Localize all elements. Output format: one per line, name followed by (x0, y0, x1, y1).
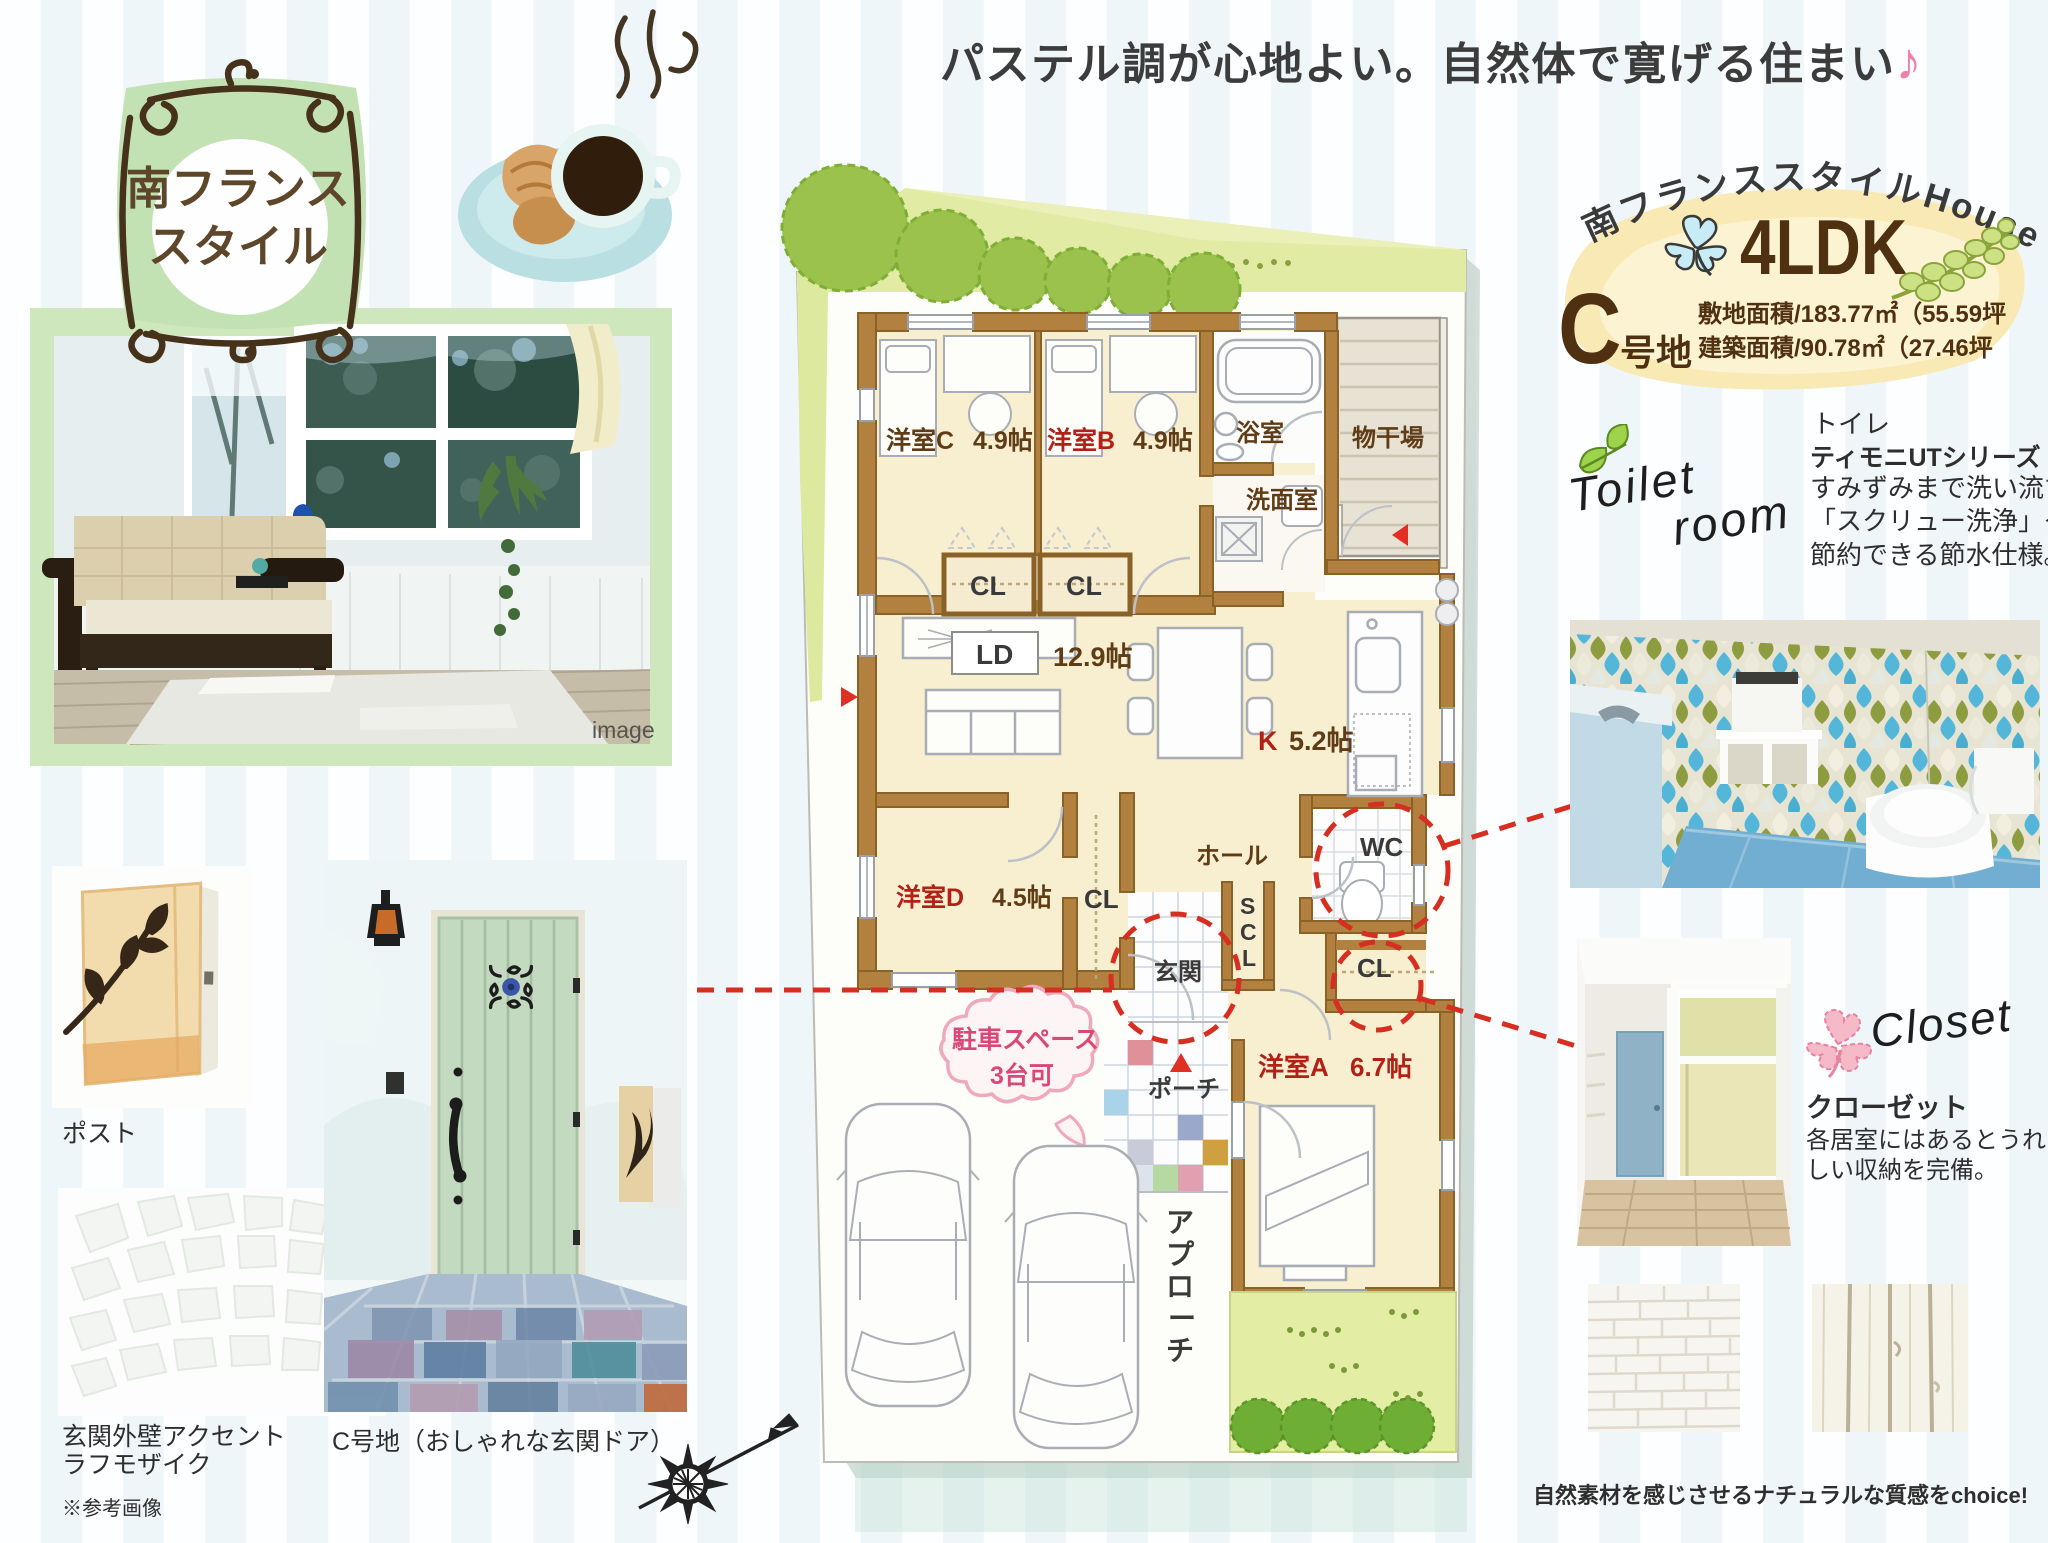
svg-text:CL: CL (970, 571, 1006, 601)
svg-text:4.9帖: 4.9帖 (973, 427, 1033, 455)
svg-text:6.7帖: 6.7帖 (1350, 1052, 1412, 1082)
svg-text:4.5帖: 4.5帖 (992, 884, 1052, 912)
svg-text:洗面室: 洗面室 (1246, 486, 1318, 514)
svg-text:WC: WC (1360, 832, 1404, 862)
svg-text:洋室C: 洋室C (886, 426, 954, 455)
svg-text:物干場: 物干場 (1352, 425, 1424, 452)
svg-text:プ: プ (1166, 1239, 1195, 1270)
svg-text:チ: チ (1166, 1335, 1194, 1366)
svg-text:駐車スペース: 駐車スペース (952, 1025, 1099, 1054)
svg-text:ー: ー (1168, 1303, 1196, 1334)
svg-text:CL: CL (1084, 884, 1119, 914)
svg-text:ロ: ロ (1166, 1271, 1194, 1302)
svg-text:ホール: ホール (1196, 843, 1268, 870)
svg-text:12.9帖: 12.9帖 (1053, 642, 1133, 672)
svg-text:LD: LD (976, 639, 1013, 670)
svg-text:洋室B: 洋室B (1047, 426, 1115, 455)
svg-text:CL: CL (1066, 571, 1102, 601)
svg-text:ア: ア (1166, 1207, 1194, 1238)
svg-text:3台可: 3台可 (990, 1061, 1054, 1090)
svg-text:洋室A: 洋室A (1258, 1052, 1329, 1082)
svg-text:L: L (1242, 945, 1256, 971)
svg-text:S: S (1240, 893, 1255, 919)
svg-text:洋室D: 洋室D (896, 883, 964, 912)
svg-text:ポーチ: ポーチ (1148, 1075, 1220, 1103)
svg-text:K: K (1258, 726, 1278, 756)
svg-text:C: C (1240, 919, 1257, 945)
svg-text:玄関: 玄関 (1154, 958, 1202, 986)
svg-text:5.2帖: 5.2帖 (1289, 726, 1354, 756)
svg-text:浴室: 浴室 (1236, 419, 1284, 447)
svg-text:CL: CL (1357, 953, 1392, 983)
svg-text:4.9帖: 4.9帖 (1133, 427, 1193, 455)
